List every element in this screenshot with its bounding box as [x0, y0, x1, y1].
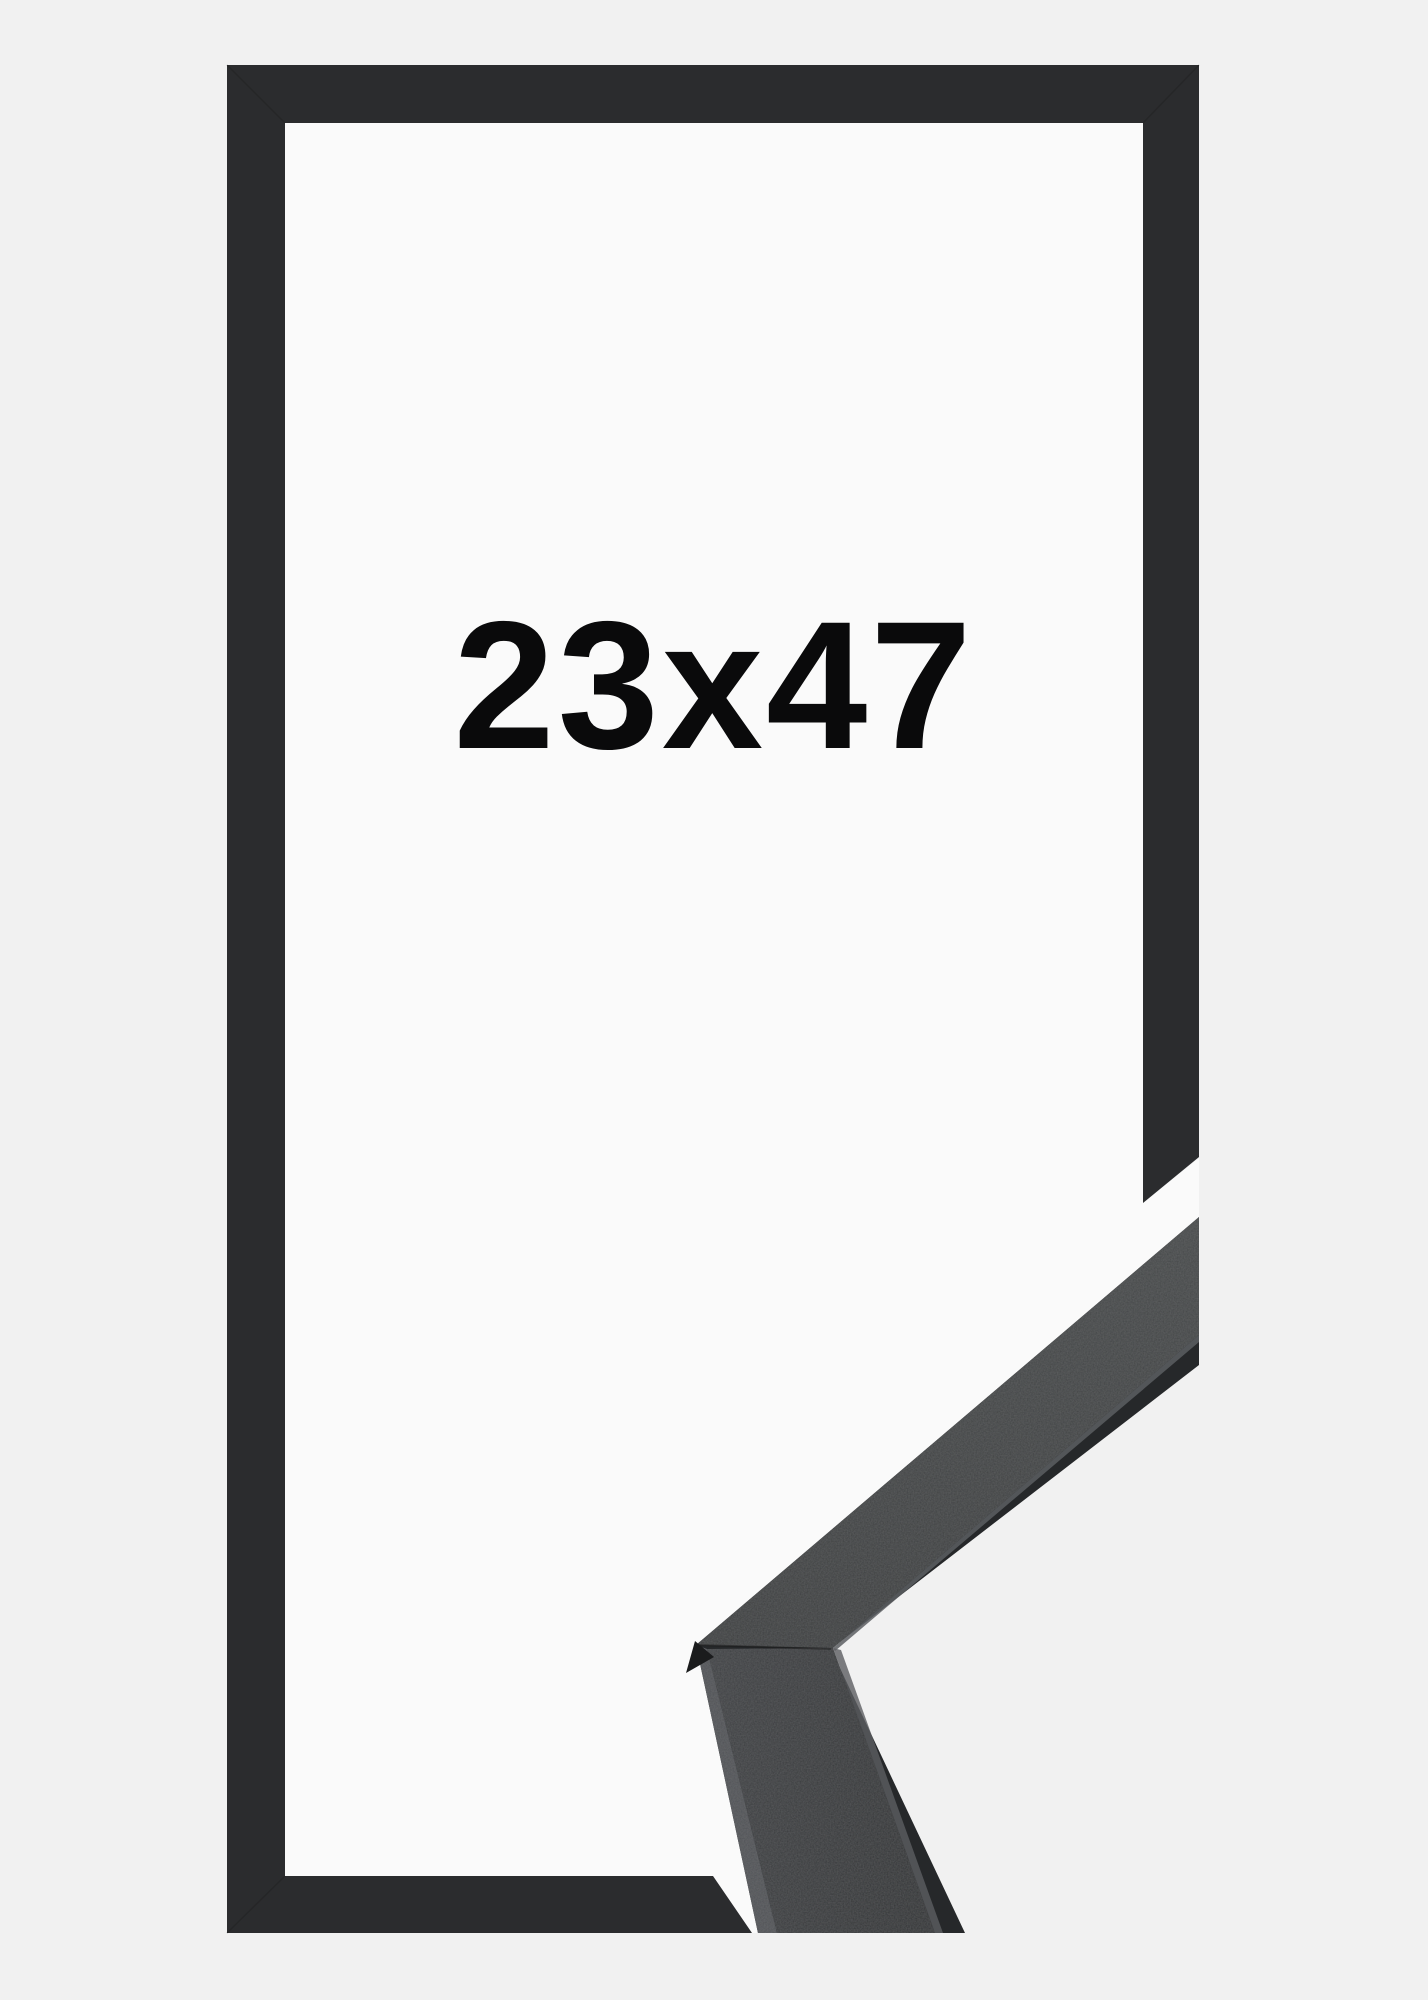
product-image: 23x47	[0, 0, 1428, 2000]
size-label: 23x47	[285, 594, 1143, 774]
frame-product-graphic	[0, 0, 1428, 2000]
